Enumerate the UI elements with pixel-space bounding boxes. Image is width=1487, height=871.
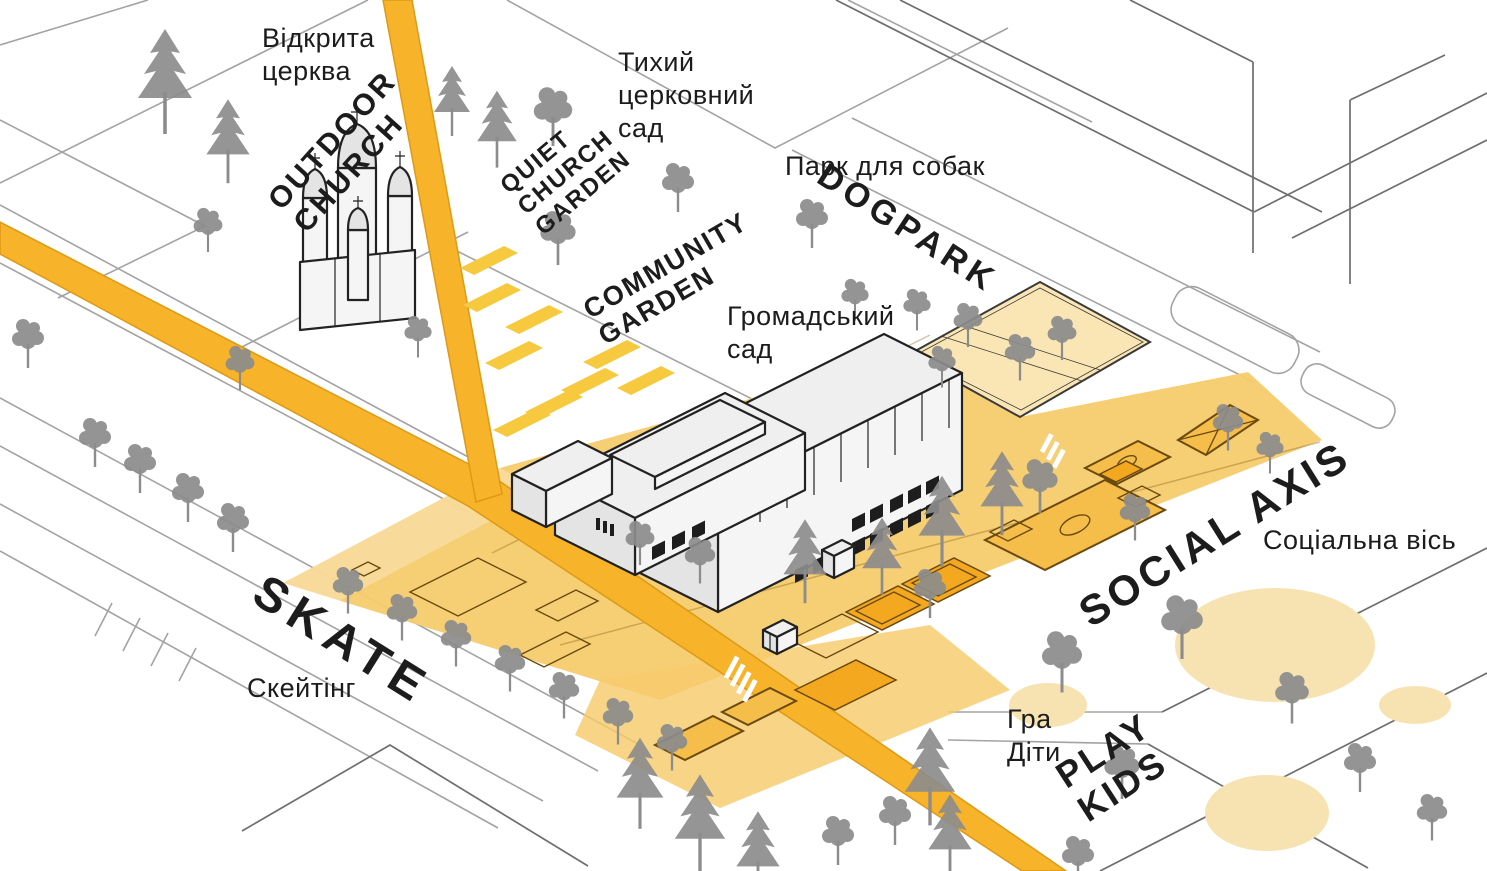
tree-icon: [79, 418, 111, 467]
tree-icon: [549, 672, 579, 719]
church-icon: [300, 106, 415, 330]
tree-icon: [172, 473, 204, 522]
tree-icon: [1275, 672, 1309, 723]
tree-icon: [1256, 432, 1283, 474]
tree-icon: [534, 87, 572, 146]
pine-tree-icon: [736, 811, 779, 871]
tree-icon: [1104, 745, 1139, 799]
tree-icon: [1417, 794, 1447, 841]
masterplan-drawing: [0, 0, 1487, 871]
tree-icon: [903, 289, 930, 331]
tree-icon: [841, 279, 868, 321]
tree-icon: [662, 163, 694, 212]
tree-icon: [217, 503, 249, 552]
tree-icon: [879, 796, 911, 845]
tree-icon: [387, 594, 417, 641]
site-plan-canvas: Відкрита церква OUTDOOR CHURCH Тихий цер…: [0, 0, 1487, 871]
tree-icon: [1120, 494, 1150, 541]
tree-icon: [333, 567, 363, 614]
tree-icon: [12, 319, 44, 368]
community-garden-plots: [460, 246, 675, 437]
play-area-ellipses: [1009, 588, 1451, 851]
pine-tree-icon: [477, 91, 517, 168]
tree-icon: [540, 211, 575, 265]
pine-tree-icon: [206, 99, 249, 183]
tree-icon: [1344, 743, 1376, 792]
tree-icon: [404, 316, 431, 358]
tree-icon: [194, 208, 223, 252]
tree-icon: [124, 444, 156, 493]
tree-icon: [441, 620, 471, 667]
pine-tree-icon: [138, 29, 192, 134]
tree-icon: [495, 645, 525, 692]
tree-icon: [822, 816, 854, 865]
tree-icon: [796, 199, 828, 248]
pine-tree-icon: [434, 66, 470, 136]
tree-icon: [1062, 836, 1094, 871]
